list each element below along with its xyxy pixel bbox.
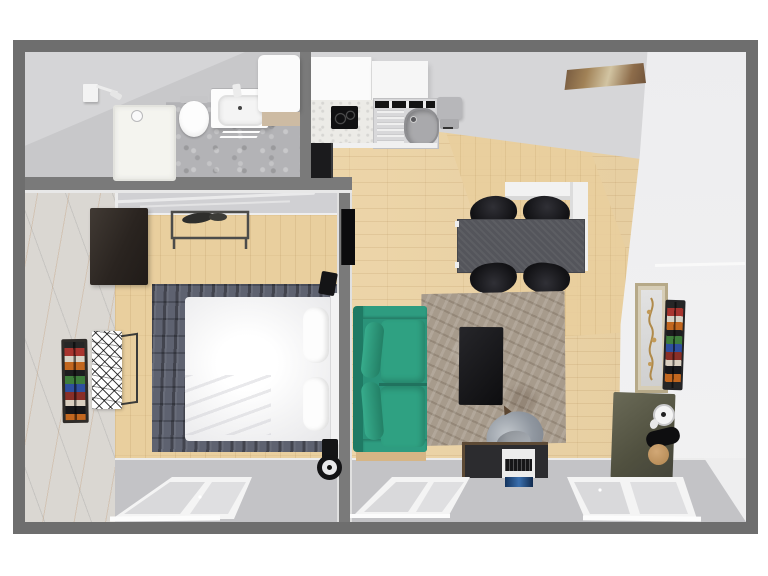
outer-wall-frame (13, 40, 758, 534)
floor-plan-canvas (0, 0, 768, 576)
